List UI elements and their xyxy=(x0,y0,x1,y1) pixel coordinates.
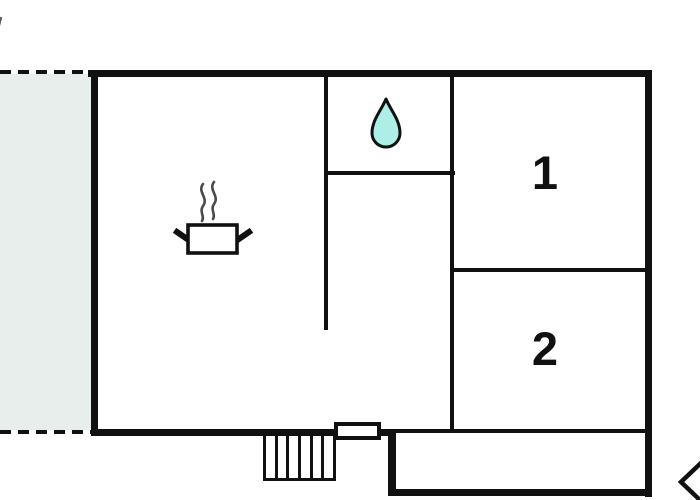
stair-tread xyxy=(289,436,298,478)
vestibule-wall-left xyxy=(388,429,396,496)
room-1-label: 1 xyxy=(455,146,635,200)
terrace-dashed-border-top xyxy=(0,70,92,74)
wall-bottom-left-segment xyxy=(91,429,336,436)
bathroom-wall-bottom xyxy=(324,171,455,175)
entrance-arrow-chevron xyxy=(681,463,700,500)
water-drop-shape xyxy=(372,99,400,147)
wall-top xyxy=(88,70,652,77)
stairs xyxy=(263,433,336,481)
steam-icon xyxy=(201,184,204,221)
stair-tread xyxy=(324,436,333,478)
bedrooms-wall-left xyxy=(450,70,454,433)
vestibule-wall-top xyxy=(394,429,652,433)
cooking-pot-icon xyxy=(172,178,254,263)
pot-body xyxy=(188,225,237,253)
vestibule-wall-bottom xyxy=(388,489,652,496)
floor-plan: 1 2 xyxy=(0,0,700,500)
entrance-arrow-icon xyxy=(678,461,700,500)
room1-room2-divider-wall xyxy=(452,268,652,272)
stair-tread xyxy=(278,436,287,478)
stair-tread xyxy=(301,436,310,478)
terrace-area xyxy=(0,74,92,430)
wall-right xyxy=(645,70,652,497)
stair-tread xyxy=(266,436,275,478)
room-2-label: 2 xyxy=(455,322,635,376)
hallway-wall-left xyxy=(324,70,328,330)
entrance-door xyxy=(334,422,381,440)
water-drop-icon xyxy=(368,96,404,157)
terrace-dashed-border-bottom xyxy=(0,430,92,434)
edge-artifact-mark xyxy=(0,17,2,27)
stair-tread xyxy=(313,436,322,478)
wall-left xyxy=(91,70,98,436)
steam-icon xyxy=(212,182,215,219)
